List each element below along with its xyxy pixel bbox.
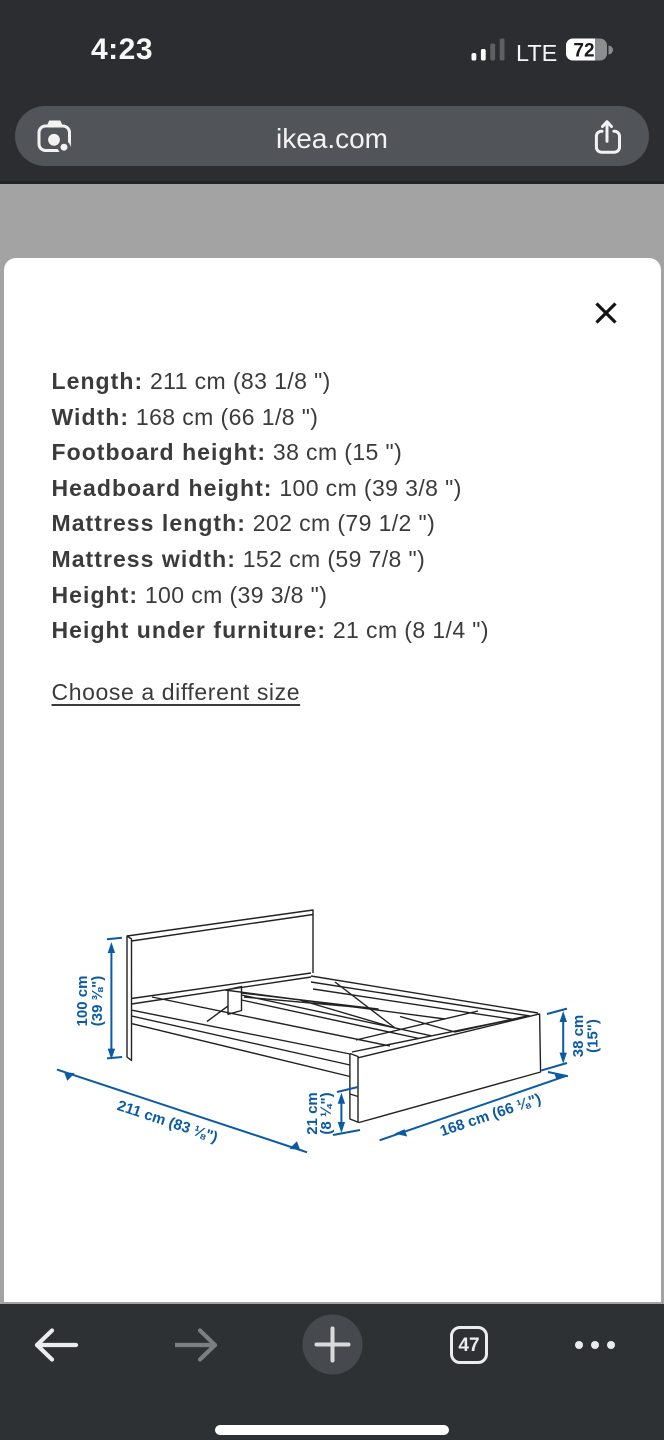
svg-text:(8 ¼"): (8 ¼"): [318, 1092, 335, 1134]
svg-text:(15"): (15"): [585, 1019, 602, 1053]
svg-text:211 cm (83 ⅛"): 211 cm (83 ⅛"): [115, 1097, 220, 1146]
svg-text:72: 72: [573, 41, 594, 62]
svg-text:(39 ⅜"): (39 ⅜"): [89, 976, 106, 1026]
